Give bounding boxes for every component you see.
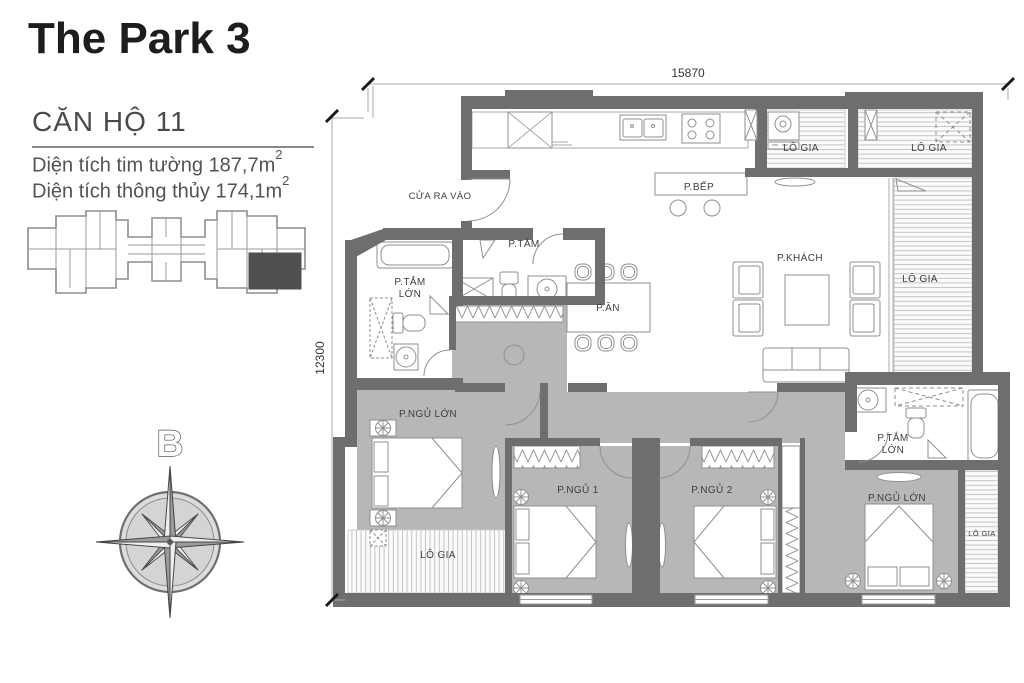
- toilet-icon: [906, 408, 926, 418]
- toilet-icon: [500, 272, 518, 284]
- shower-corner: [480, 240, 495, 258]
- toilet-icon: [393, 313, 425, 333]
- room-label-bedroom2: P.NGỦ 2: [691, 483, 733, 496]
- room-label-master-left: P.NGỦ LỚN: [399, 407, 457, 420]
- bath-large-left: [370, 242, 453, 370]
- sink-icon: [394, 344, 418, 370]
- wardrobe: [702, 446, 774, 468]
- stove-icon: [682, 114, 720, 143]
- balcony-box-x: [370, 530, 386, 546]
- shower-corner: [928, 440, 946, 458]
- bathtub-icon: [968, 390, 1001, 462]
- shower-corner: [430, 296, 448, 314]
- living-set: [733, 178, 880, 382]
- room-label-bath-large-left-2: LỚN: [399, 287, 422, 300]
- floorplan-page: The Park 3 CĂN HỘ 11 Diện tích tim tường…: [0, 0, 1024, 683]
- dim-height-label: 12300: [313, 341, 327, 375]
- bar-stool: [704, 200, 720, 216]
- ceiling-fan-icon: [775, 178, 815, 186]
- room-label-bath-large-left-1: P.TẮM: [394, 275, 425, 288]
- room-label-balcony-top-2: LÔ GIA: [911, 141, 947, 154]
- room-label-bedroom1: P.NGỦ 1: [557, 483, 599, 496]
- bath-large-right: [850, 388, 1001, 462]
- mirror: [492, 446, 500, 498]
- room-label-bathroom: P.TẮM: [508, 237, 539, 250]
- room-label-master-right: P.NGỦ LỚN: [868, 491, 926, 504]
- ceiling-fan-icon: [877, 473, 921, 482]
- entry-door-arc: [468, 179, 510, 221]
- room-label-entrance: CỬA RA VÀO: [409, 190, 472, 202]
- room-label-balcony-right: LÔ GIA: [902, 272, 938, 285]
- bath-large-door-arc: [424, 350, 450, 376]
- room-label-balcony-top-1: LÔ GIA: [783, 141, 819, 154]
- wardrobe-strip: [782, 508, 800, 593]
- coffee-table: [785, 275, 829, 325]
- room-label-balcony-bottom-right: LÔ GIA: [968, 529, 995, 538]
- room-label-bath-large-right-2: LỚN: [882, 443, 905, 456]
- dim-width-label: 15870: [671, 66, 705, 80]
- wardrobe: [514, 446, 580, 468]
- bar-stool: [670, 200, 686, 216]
- closet: [782, 446, 800, 508]
- bar-counter: [655, 173, 747, 216]
- windows: [520, 595, 935, 604]
- wardrobe-corridor: [455, 306, 563, 322]
- room-label-dining: P.ĂN: [596, 301, 620, 314]
- room-label-kitchen: P.BẾP: [684, 180, 714, 193]
- glass-wall: [889, 178, 893, 372]
- room-label-balcony-bottom-left: LÔ GIA: [420, 548, 456, 561]
- room-label-bath-large-right-1: P.TẮM: [877, 431, 908, 444]
- bathtub-icon: [377, 242, 453, 268]
- kitchen-counter: [472, 112, 748, 148]
- sofa: [763, 348, 849, 382]
- sink-icon: [620, 115, 666, 140]
- floor-plan: 15870 12300 CỬA RA VÀO P.BẾP LÔ GIA LÔ G…: [0, 0, 1024, 683]
- room-label-living: P.KHÁCH: [777, 251, 823, 264]
- mirror: [626, 523, 633, 567]
